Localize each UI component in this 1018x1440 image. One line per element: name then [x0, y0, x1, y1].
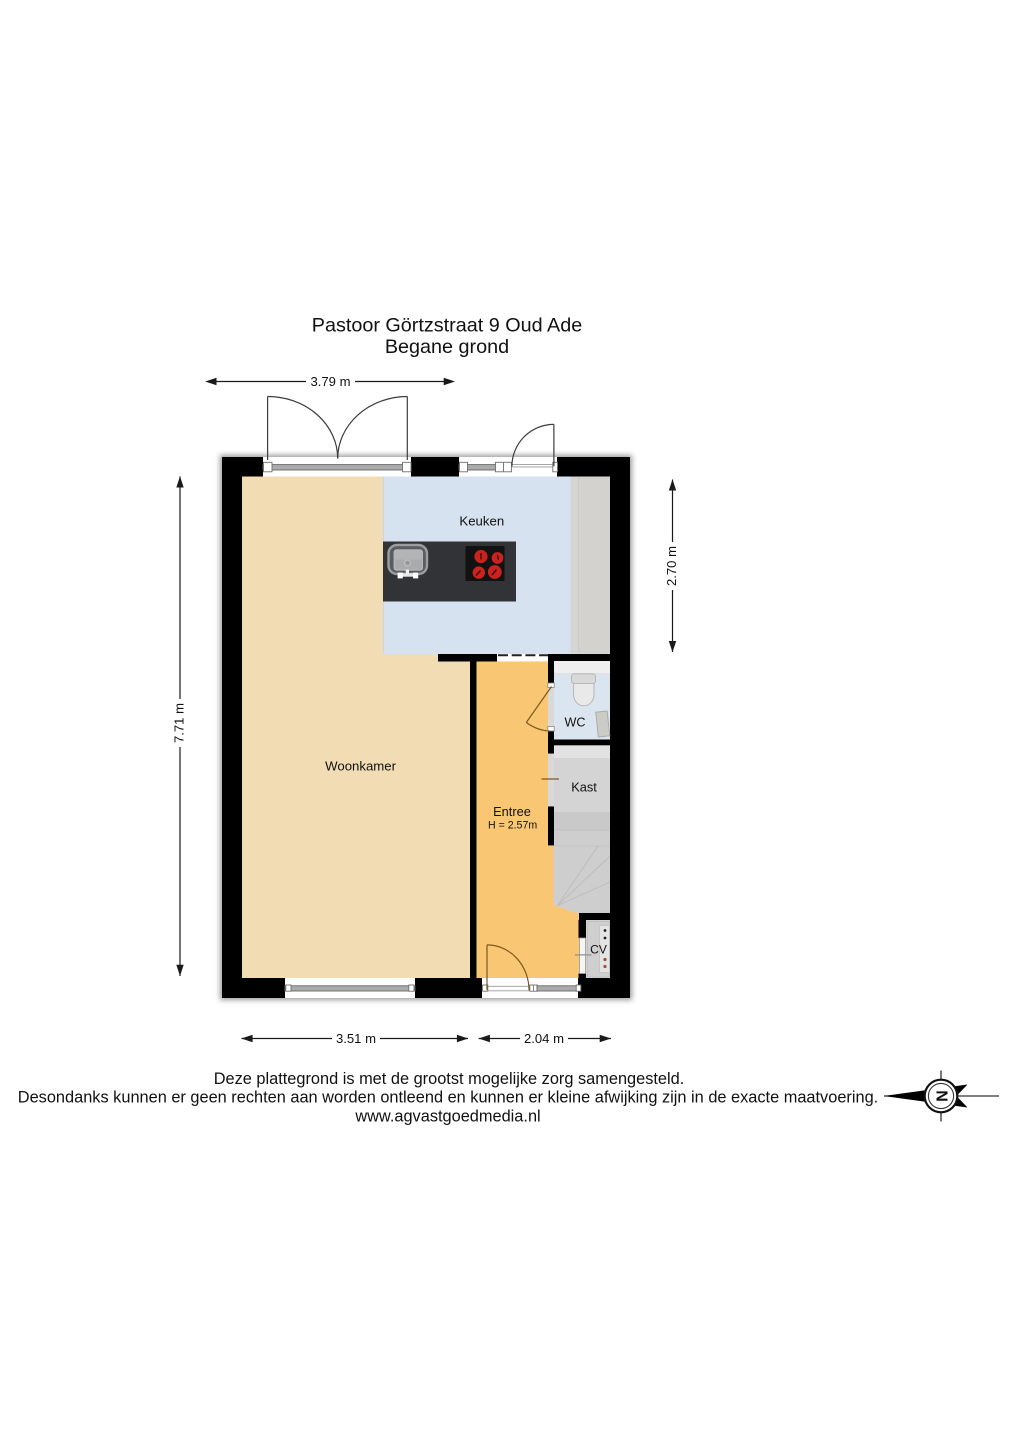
svg-text:WC: WC [565, 716, 586, 730]
svg-text:2.70 m: 2.70 m [664, 546, 679, 586]
svg-text:Pastoor Görtzstraat 9 Oud Ade: Pastoor Görtzstraat 9 Oud Ade [312, 315, 583, 337]
svg-text:Deze plattegrond is met de gro: Deze plattegrond is met de grootst mogel… [214, 1070, 685, 1088]
svg-text:Entree: Entree [493, 804, 531, 819]
svg-text:2.04 m: 2.04 m [524, 1031, 564, 1046]
svg-text:H = 2.57m: H = 2.57m [488, 820, 537, 832]
svg-text:3.51 m: 3.51 m [336, 1031, 376, 1046]
svg-text:N: N [933, 1090, 950, 1102]
svg-text:Woonkamer: Woonkamer [325, 758, 396, 773]
svg-text:3.79 m: 3.79 m [310, 374, 350, 389]
svg-text:Begane grond: Begane grond [385, 336, 509, 358]
svg-text:CV: CV [590, 943, 607, 957]
svg-text:Keuken: Keuken [459, 514, 504, 529]
svg-text:www.agvastgoedmedia.nl: www.agvastgoedmedia.nl [354, 1107, 540, 1125]
svg-text:Kast: Kast [571, 780, 597, 795]
svg-text:Desondanks kunnen er geen rech: Desondanks kunnen er geen rechten aan wo… [18, 1088, 878, 1106]
svg-text:7.71 m: 7.71 m [171, 703, 186, 743]
